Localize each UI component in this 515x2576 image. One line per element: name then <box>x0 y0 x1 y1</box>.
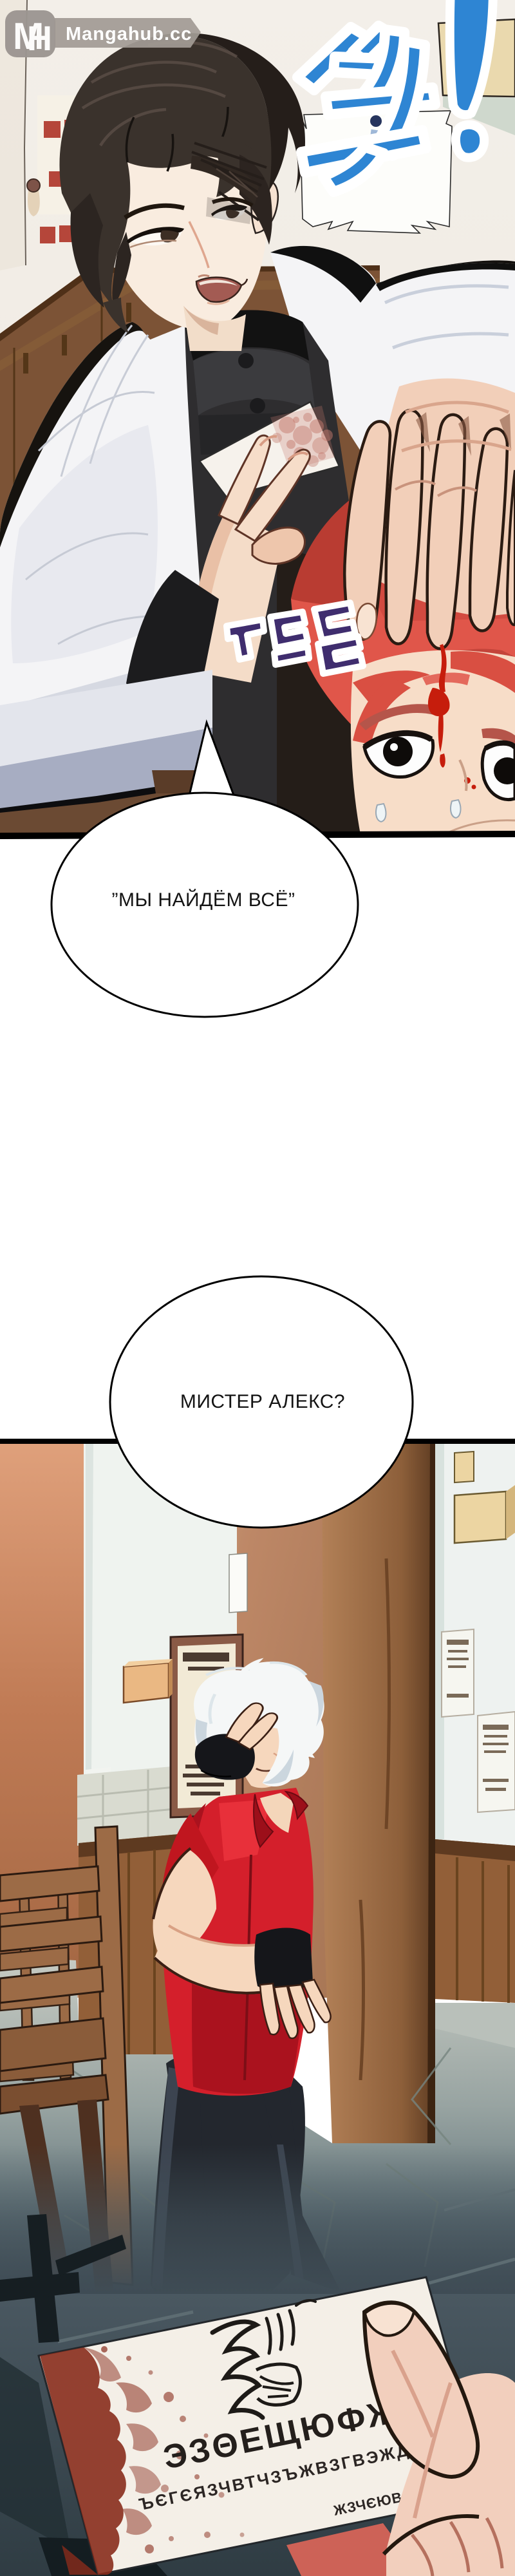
svg-text:H: H <box>27 19 52 58</box>
svg-text:”МЫ НАЙДЁМ ВСЁ”: ”МЫ НАЙДЁМ ВСЁ” <box>112 889 295 911</box>
svg-text:МИСТЕР АЛЕКС?: МИСТЕР АЛЕКС? <box>180 1391 345 1412</box>
svg-text:Mangahub.cc: Mangahub.cc <box>66 24 192 44</box>
